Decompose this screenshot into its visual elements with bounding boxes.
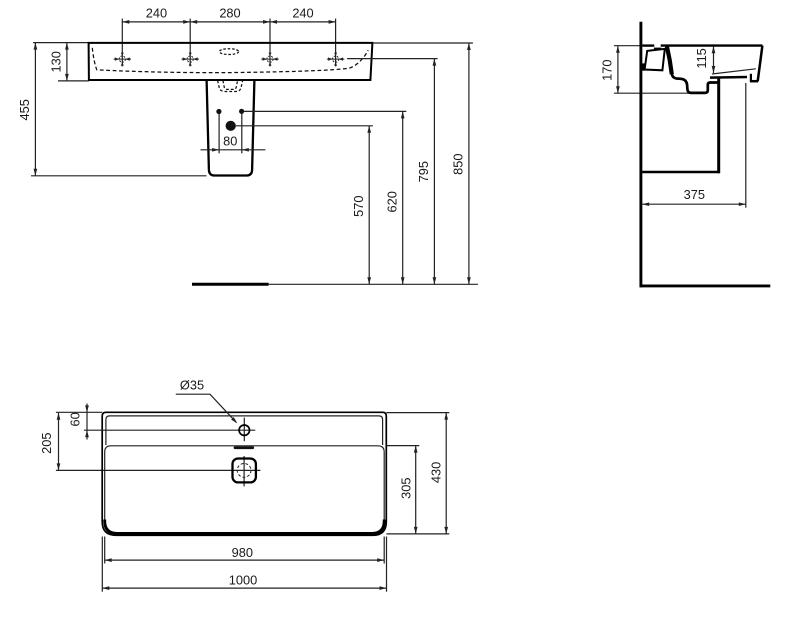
svg-text:850: 850 — [451, 154, 466, 175]
svg-text:205: 205 — [39, 433, 54, 454]
svg-text:430: 430 — [429, 462, 444, 483]
svg-text:60: 60 — [68, 412, 83, 426]
svg-text:115: 115 — [694, 48, 709, 68]
svg-text:80: 80 — [223, 133, 237, 148]
svg-text:280: 280 — [219, 5, 240, 20]
svg-text:240: 240 — [146, 5, 167, 20]
svg-text:1000: 1000 — [229, 573, 257, 588]
svg-text:Ø35: Ø35 — [180, 377, 204, 392]
svg-text:130: 130 — [49, 51, 64, 72]
svg-text:980: 980 — [232, 545, 253, 560]
svg-text:455: 455 — [17, 99, 32, 120]
svg-text:795: 795 — [416, 161, 431, 182]
svg-text:620: 620 — [385, 191, 400, 212]
svg-text:305: 305 — [399, 478, 414, 499]
svg-text:170: 170 — [600, 60, 615, 81]
svg-text:240: 240 — [292, 5, 313, 20]
svg-text:375: 375 — [684, 187, 705, 202]
svg-text:570: 570 — [351, 196, 366, 217]
